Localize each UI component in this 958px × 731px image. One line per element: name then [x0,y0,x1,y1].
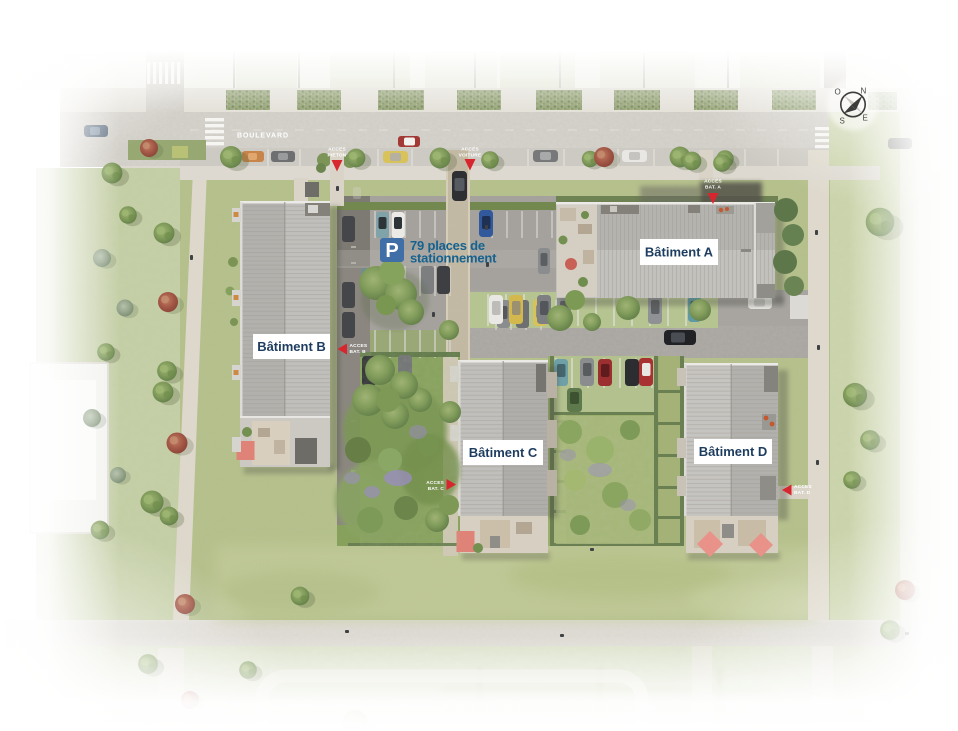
svg-text:S: S [840,117,845,126]
svg-text:BOULEVARD: BOULEVARD [237,133,289,140]
svg-text:ACCES: ACCES [350,343,368,349]
svg-text:P: P [385,240,398,262]
svg-text:stationnement: stationnement [410,251,497,266]
svg-text:N: N [861,87,867,96]
svg-text:Bâtiment B: Bâtiment B [257,339,326,354]
svg-text:BAT. D: BAT. D [794,490,811,496]
svg-text:Bâtiment A: Bâtiment A [645,245,714,260]
svg-text:PIETON: PIETON [328,153,347,159]
svg-text:E: E [863,114,868,123]
svg-text:ACCES: ACCES [426,480,444,486]
svg-text:Bâtiment D: Bâtiment D [699,444,768,459]
svg-text:ACCES: ACCES [461,147,479,153]
svg-text:ACCES: ACCES [328,147,346,153]
svg-text:O: O [835,88,841,97]
svg-text:Bâtiment C: Bâtiment C [469,445,538,460]
svg-text:BAT. B: BAT. B [350,349,367,355]
svg-text:ACCES: ACCES [794,484,812,490]
svg-text:VOITURE: VOITURE [459,153,482,159]
svg-text:BAT. C: BAT. C [428,486,445,492]
